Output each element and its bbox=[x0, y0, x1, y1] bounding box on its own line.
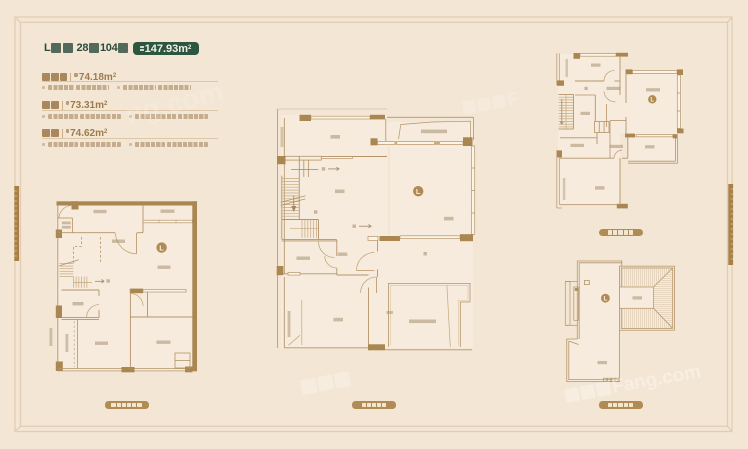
svg-text:L: L bbox=[650, 97, 654, 104]
svg-text:L: L bbox=[159, 243, 164, 252]
svg-text:L: L bbox=[603, 296, 607, 303]
svg-text:L: L bbox=[416, 187, 421, 196]
